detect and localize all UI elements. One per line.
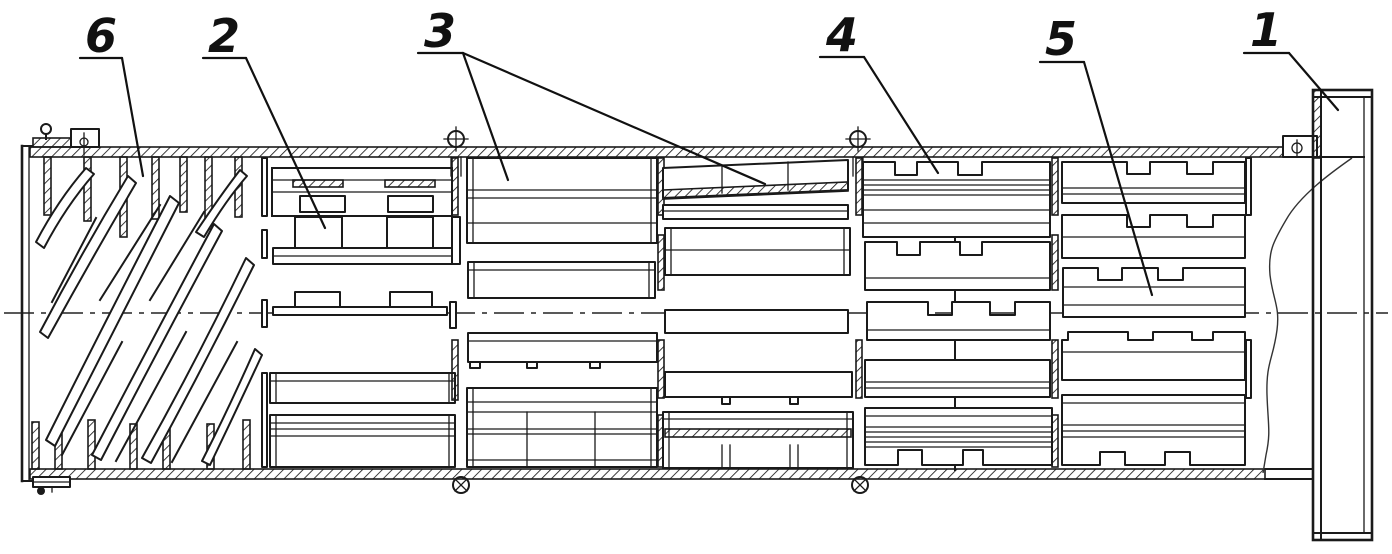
shell-bottom-wall — [30, 469, 1265, 479]
drawing-canvas: 6 2 3 4 5 1 — [0, 0, 1392, 554]
callout-3-label: 3 — [424, 4, 456, 58]
outlet-ring — [1283, 90, 1372, 540]
shelf-section-bay2 — [658, 158, 853, 468]
notched-plate-section-5 — [1052, 158, 1251, 467]
break-line — [1263, 158, 1352, 473]
callout-1: 1 — [1244, 3, 1338, 110]
bottom-bracket — [33, 477, 70, 495]
shell-top-wall — [30, 147, 1313, 157]
callout-5-label: 5 — [1045, 12, 1077, 66]
callout-4-label: 4 — [825, 8, 858, 62]
callout-1-label: 1 — [1250, 3, 1282, 57]
callout-6-label: 6 — [85, 9, 117, 63]
paddle-bar-section — [270, 168, 460, 467]
technical-drawing-drum-cross-section: 6 2 3 4 5 1 — [0, 0, 1392, 554]
notched-plate-section-4 — [856, 158, 1052, 470]
callout-2-leader — [246, 58, 325, 228]
callout-2-label: 2 — [208, 9, 240, 63]
